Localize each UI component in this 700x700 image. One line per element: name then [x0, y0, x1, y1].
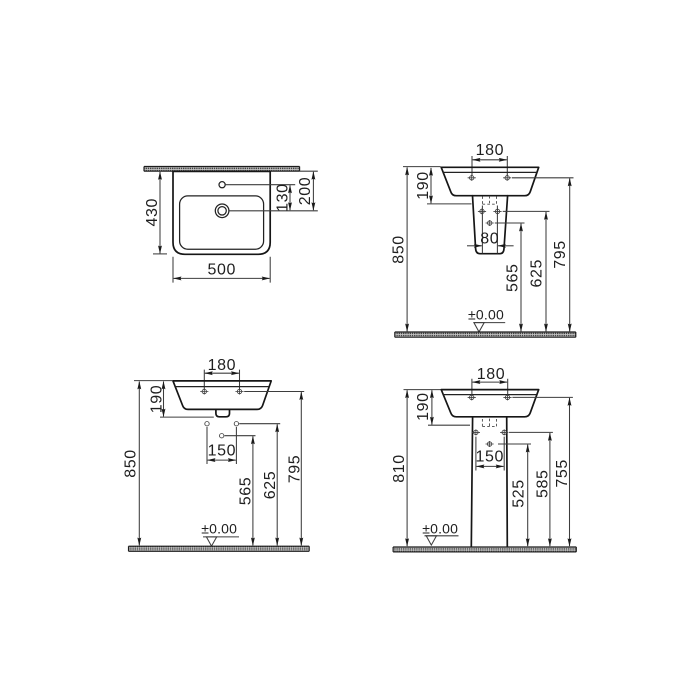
svg-text:180: 180: [476, 142, 505, 159]
svg-text:795: 795: [286, 455, 303, 484]
svg-text:810: 810: [391, 454, 408, 483]
svg-text:190: 190: [415, 392, 432, 421]
svg-text:795: 795: [552, 240, 569, 269]
svg-text:190: 190: [148, 385, 165, 414]
svg-text:525: 525: [510, 479, 527, 508]
svg-text:180: 180: [208, 357, 237, 374]
svg-text:180: 180: [477, 366, 506, 383]
svg-text:565: 565: [504, 263, 521, 292]
svg-text:±0.00: ±0.00: [422, 520, 458, 536]
svg-text:850: 850: [391, 235, 408, 264]
svg-text:585: 585: [535, 470, 552, 499]
svg-text:±0.00: ±0.00: [468, 306, 504, 322]
svg-text:±0.00: ±0.00: [201, 520, 237, 536]
svg-text:190: 190: [415, 171, 432, 200]
svg-text:755: 755: [554, 459, 571, 488]
svg-text:430: 430: [144, 198, 161, 227]
svg-text:150: 150: [208, 442, 237, 459]
svg-text:850: 850: [123, 449, 140, 478]
svg-text:625: 625: [262, 471, 279, 500]
svg-text:500: 500: [208, 261, 237, 278]
svg-text:130: 130: [274, 183, 291, 212]
svg-text:200: 200: [297, 177, 314, 206]
svg-text:625: 625: [529, 259, 546, 288]
svg-text:80: 80: [480, 230, 499, 247]
svg-text:150: 150: [476, 448, 505, 465]
svg-text:565: 565: [238, 477, 255, 506]
